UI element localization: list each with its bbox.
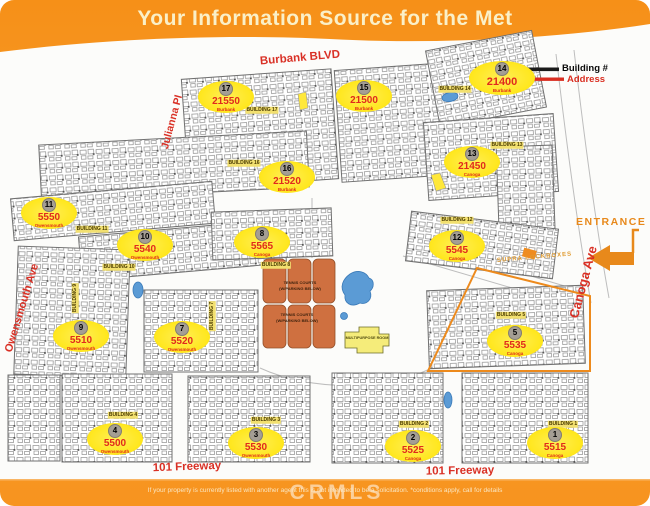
building-number-badge: 7 bbox=[175, 322, 189, 336]
building-address: 5520 bbox=[171, 337, 193, 347]
building-address: 5535 bbox=[504, 341, 526, 351]
building-1-marker: 1 5515 Canoga bbox=[527, 427, 583, 459]
map-label-building-7: BUILDING 7 bbox=[209, 301, 216, 331]
building-street: Owensmouth bbox=[242, 454, 271, 459]
tennis-sub: (W/PARKING BELOW) bbox=[276, 318, 318, 324]
building-number-badge: 16 bbox=[280, 162, 294, 176]
flyer-frame: Your Information Source for the Met bbox=[0, 0, 650, 506]
building-street: Burbank bbox=[278, 188, 296, 193]
building-address: 5545 bbox=[446, 246, 468, 256]
building-street: Owensmouth bbox=[101, 450, 130, 455]
building-address: 5565 bbox=[251, 242, 273, 252]
building-street: Owensmouth bbox=[131, 256, 160, 261]
footer-disclaimer: If your property is currently listed wit… bbox=[0, 487, 650, 494]
building-15-marker: 15 21500 Burbank bbox=[336, 80, 392, 112]
map-label-building-16: BUILDING 16 bbox=[227, 160, 260, 167]
building-14-marker: 14 21400 Burbank bbox=[469, 61, 535, 95]
map-label-building-5: BUILDING 5 bbox=[496, 312, 526, 319]
building-street: Burbank bbox=[217, 108, 235, 113]
map-label-building-14: BUILDING 14 bbox=[438, 86, 471, 93]
building-address: 21400 bbox=[487, 77, 518, 88]
building-12-marker: 12 5545 Canoga bbox=[429, 230, 485, 262]
building-street: Canoga bbox=[449, 257, 466, 262]
building-address: 5530 bbox=[245, 443, 267, 453]
building-street: Owensmouth bbox=[67, 347, 96, 352]
legend-building-label: Building # bbox=[562, 63, 608, 74]
building-9-marker: 9 5510 Owensmouth bbox=[53, 320, 109, 352]
building-number-badge: 13 bbox=[465, 147, 479, 161]
building-8-marker: 8 5565 Canoga bbox=[234, 226, 290, 258]
building-number-badge: 8 bbox=[255, 227, 269, 241]
tennis-sub: (W/PARKING BELOW) bbox=[279, 286, 321, 292]
building-address: 21550 bbox=[212, 97, 240, 107]
tennis-courts-label-2: TENNIS COURTS (W/PARKING BELOW) bbox=[276, 312, 318, 324]
building-number-badge: 9 bbox=[74, 321, 88, 335]
map-label-building-12: BUILDING 12 bbox=[440, 217, 473, 224]
map-label-building-17: BUILDING 17 bbox=[245, 107, 278, 114]
building-address: 5515 bbox=[544, 443, 566, 453]
building-street: Canoga bbox=[405, 457, 422, 462]
building-number-badge: 15 bbox=[357, 81, 371, 95]
building-street: Canoga bbox=[547, 454, 564, 459]
page-title: Your Information Source for the Met bbox=[0, 7, 650, 31]
building-street: Canoga bbox=[254, 253, 271, 258]
building-5-marker: 5 5535 Canoga bbox=[487, 325, 543, 357]
building-address: 5525 bbox=[402, 446, 424, 456]
building-number-badge: 5 bbox=[508, 326, 522, 340]
map-label-building-8: BUILDING 8 bbox=[261, 262, 291, 269]
building-address: 21520 bbox=[273, 177, 301, 187]
building-number-badge: 14 bbox=[495, 62, 509, 76]
map-label-building-10: BUILDING 10 bbox=[102, 264, 135, 271]
building-street: Burbank bbox=[493, 89, 511, 94]
street-label-freeway-left: 101 Freeway bbox=[153, 460, 222, 474]
building-17-marker: 17 21550 Burbank bbox=[198, 81, 254, 113]
legend-address-label: Address bbox=[567, 74, 605, 85]
map-label-building-4: BUILDING 4 bbox=[108, 412, 138, 419]
building-11-marker: 11 5550 Owensmouth bbox=[21, 197, 77, 229]
map-label-building-2: BUILDING 2 bbox=[399, 421, 429, 428]
building-7-marker: 7 5520 Owensmouth bbox=[154, 321, 210, 353]
building-address: 5500 bbox=[104, 439, 126, 449]
building-number-badge: 17 bbox=[219, 82, 233, 96]
street-label-freeway-right: 101 Freeway bbox=[426, 464, 495, 477]
tennis-courts-label-1: TENNIS COURTS (W/PARKING BELOW) bbox=[279, 280, 321, 292]
building-address: 5540 bbox=[134, 245, 156, 255]
building-10-marker: 10 5540 Owensmouth bbox=[117, 229, 173, 261]
building-address: 21500 bbox=[350, 96, 378, 106]
building-street: Burbank bbox=[355, 107, 373, 112]
building-number-badge: 1 bbox=[548, 428, 562, 442]
building-number-badge: 2 bbox=[406, 431, 420, 445]
building-3-marker: 3 5530 Owensmouth bbox=[228, 427, 284, 459]
building-street: Canoga bbox=[507, 352, 524, 357]
building-2-marker: 2 5525 Canoga bbox=[385, 430, 441, 462]
map-label-building-11: BUILDING 11 bbox=[76, 226, 109, 233]
building-number-badge: 3 bbox=[249, 428, 263, 442]
map-label-building-9: BUILDING 9 bbox=[72, 283, 79, 313]
building-13-marker: 13 21450 Canoga bbox=[444, 146, 500, 178]
building-number-badge: 12 bbox=[450, 231, 464, 245]
building-address: 5510 bbox=[70, 336, 92, 346]
building-4-marker: 4 5500 Owensmouth bbox=[87, 423, 143, 455]
building-number-badge: 11 bbox=[42, 198, 56, 212]
entrance-label: ENTRANCE bbox=[576, 216, 646, 228]
building-address: 5550 bbox=[38, 213, 60, 223]
multipurpose-room-label: MULTIPURPOSE ROOM bbox=[346, 336, 389, 342]
building-street: Canoga bbox=[464, 173, 481, 178]
building-street: Owensmouth bbox=[168, 348, 197, 353]
building-16-marker: 16 21520 Burbank bbox=[259, 161, 315, 193]
building-street: Owensmouth bbox=[35, 224, 64, 229]
building-number-badge: 4 bbox=[108, 424, 122, 438]
map-label-building-3: BUILDING 3 bbox=[251, 417, 281, 424]
building-number-badge: 10 bbox=[138, 230, 152, 244]
building-address: 21450 bbox=[458, 162, 486, 172]
map-label-building-13: BUILDING 13 bbox=[490, 142, 523, 149]
